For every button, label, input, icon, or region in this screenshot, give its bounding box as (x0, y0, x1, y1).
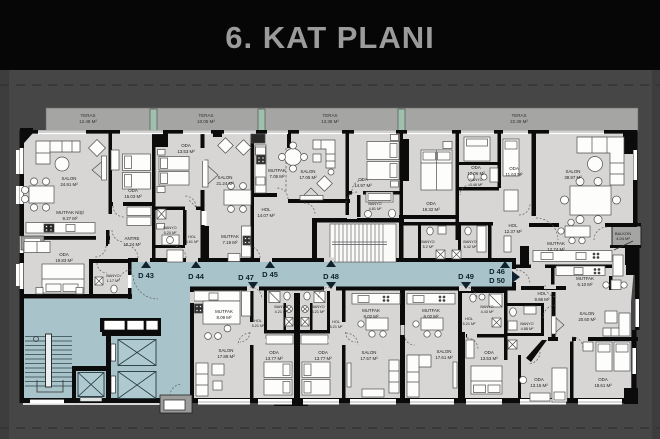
svg-text:10.24 M²: 10.24 M² (123, 242, 141, 247)
svg-text:12.37 M²: 12.37 M² (504, 229, 522, 234)
svg-text:ODA: ODA (269, 350, 279, 355)
svg-text:SALON: SALON (62, 176, 77, 181)
svg-text:D 44: D 44 (188, 272, 205, 281)
svg-text:BANYO: BANYO (274, 305, 287, 309)
svg-text:13.77 M²: 13.77 M² (314, 356, 332, 361)
svg-text:MUTFAK: MUTFAK (215, 309, 233, 314)
svg-text:BANYO: BANYO (368, 202, 381, 206)
svg-text:8.02 M²: 8.02 M² (424, 314, 439, 319)
svg-text:D 45: D 45 (262, 270, 278, 279)
svg-text:5.21 M²: 5.21 M² (330, 325, 344, 329)
svg-text:9.27 M²: 9.27 M² (63, 216, 78, 221)
svg-text:D 50: D 50 (489, 276, 505, 285)
svg-text:MUTFAK: MUTFAK (547, 241, 565, 246)
svg-text:ODA: ODA (181, 143, 191, 148)
svg-text:ODA: ODA (598, 377, 608, 382)
svg-text:5.21 M²: 5.21 M² (252, 324, 266, 328)
svg-text:5.20 M²: 5.20 M² (164, 231, 178, 235)
svg-text:MUTFAK NİŞİ: MUTFAK NİŞİ (56, 210, 84, 215)
svg-text:3.46 M²: 3.46 M² (470, 183, 484, 187)
svg-text:10.05 M²: 10.05 M² (197, 119, 215, 124)
svg-text:12.06 M²: 12.06 M² (467, 171, 485, 176)
svg-text:14.97 M²: 14.97 M² (354, 183, 372, 188)
svg-text:14.07 M²: 14.07 M² (257, 213, 275, 218)
svg-text:ODA: ODA (358, 177, 368, 182)
svg-text:ODA: ODA (471, 165, 481, 170)
svg-text:HOL: HOL (254, 319, 262, 323)
svg-text:4.43 M²: 4.43 M² (481, 310, 495, 314)
svg-text:8.02 M²: 8.02 M² (364, 314, 379, 319)
svg-text:ODA: ODA (534, 377, 544, 382)
svg-text:13.38 M²: 13.38 M² (321, 119, 339, 124)
svg-text:BANYO: BANYO (480, 305, 493, 309)
svg-text:TERAS: TERAS (198, 113, 213, 118)
svg-text:ANTRE: ANTRE (125, 236, 140, 241)
svg-text:BANYO: BANYO (520, 322, 533, 326)
svg-text:SALON: SALON (580, 311, 595, 316)
svg-text:ODA: ODA (128, 188, 138, 193)
svg-text:MUTFAK: MUTFAK (422, 308, 440, 313)
svg-text:13.15 M²: 13.15 M² (530, 383, 548, 388)
svg-text:ODA: ODA (509, 166, 519, 171)
svg-text:19.32 M²: 19.32 M² (422, 207, 440, 212)
svg-text:MUTFAK: MUTFAK (221, 234, 239, 239)
svg-text:5.61 M²: 5.61 M² (186, 240, 200, 244)
svg-text:4.04 M²: 4.04 M² (616, 236, 630, 241)
svg-text:BANYO: BANYO (163, 226, 176, 230)
svg-text:BANYO: BANYO (311, 305, 324, 309)
svg-text:38.97 M²: 38.97 M² (564, 175, 582, 180)
svg-text:6. KAT PLANI: 6. KAT PLANI (225, 20, 435, 55)
svg-text:7.19 M²: 7.19 M² (223, 240, 238, 245)
svg-text:D 47: D 47 (238, 273, 254, 282)
svg-text:MUTFAK: MUTFAK (362, 308, 380, 313)
svg-text:HOL: HOL (537, 291, 547, 296)
svg-text:HOL: HOL (465, 317, 473, 321)
svg-text:SALON: SALON (437, 349, 452, 354)
svg-text:BANYO: BANYO (106, 274, 119, 278)
svg-text:TERAS: TERAS (80, 113, 95, 118)
svg-text:HOL: HOL (508, 223, 518, 228)
svg-text:SALON: SALON (219, 348, 234, 353)
svg-text:MUTFAK: MUTFAK (576, 276, 594, 281)
svg-text:13.77 M²: 13.77 M² (265, 356, 283, 361)
svg-text:17.05 M²: 17.05 M² (299, 175, 317, 180)
svg-text:SALON: SALON (362, 350, 377, 355)
svg-text:4.21 M²: 4.21 M² (275, 310, 289, 314)
svg-text:5.2 M²: 5.2 M² (423, 245, 434, 249)
svg-text:6.42 M²: 6.42 M² (464, 245, 478, 249)
svg-text:21.24 M²: 21.24 M² (216, 181, 234, 186)
svg-text:HOL: HOL (188, 235, 196, 239)
svg-text:9.86 M²: 9.86 M² (535, 297, 550, 302)
svg-text:1.17 M²: 1.17 M² (107, 279, 121, 283)
svg-text:ODA: ODA (59, 252, 69, 257)
svg-text:D 43: D 43 (138, 271, 154, 280)
svg-text:D 49: D 49 (458, 272, 474, 281)
svg-text:SALON: SALON (566, 169, 581, 174)
svg-text:ODA: ODA (426, 201, 436, 206)
svg-text:SALON: SALON (301, 169, 316, 174)
svg-text:D 48: D 48 (323, 272, 339, 281)
svg-text:HOL: HOL (261, 207, 271, 212)
svg-text:HOL: HOL (332, 320, 340, 324)
svg-text:TERAS: TERAS (322, 113, 337, 118)
svg-text:19.83 M²: 19.83 M² (55, 258, 73, 263)
svg-text:5.21 M²: 5.21 M² (463, 322, 477, 326)
svg-text:7.05 M²: 7.05 M² (270, 174, 285, 179)
svg-text:ODA: ODA (318, 350, 328, 355)
svg-text:MUTFAK: MUTFAK (268, 168, 286, 173)
svg-text:BANYO: BANYO (463, 240, 476, 244)
svg-text:12.48 M²: 12.48 M² (79, 119, 97, 124)
svg-text:11.63 M²: 11.63 M² (505, 172, 523, 177)
svg-text:12.74 M²: 12.74 M² (547, 247, 565, 252)
svg-text:20.60 M²: 20.60 M² (578, 317, 596, 322)
svg-text:17.61 M²: 17.61 M² (435, 355, 453, 360)
svg-text:18.61 M²: 18.61 M² (594, 383, 612, 388)
svg-text:24.91 M²: 24.91 M² (60, 182, 78, 187)
svg-text:8.09 M²: 8.09 M² (217, 315, 232, 320)
svg-text:TERAS: TERAS (511, 113, 526, 118)
svg-text:17.57 M²: 17.57 M² (360, 356, 378, 361)
svg-text:15.03 M²: 15.03 M² (124, 194, 142, 199)
svg-text:BANYO: BANYO (469, 178, 482, 182)
svg-text:4.81 M²: 4.81 M² (369, 207, 383, 211)
svg-text:4.88 M²: 4.88 M² (521, 327, 535, 331)
svg-text:6.10 M²: 6.10 M² (578, 282, 593, 287)
svg-text:SALON: SALON (218, 175, 233, 180)
svg-text:ODA: ODA (484, 350, 494, 355)
svg-text:BANYO: BANYO (421, 240, 434, 244)
svg-text:D 46: D 46 (489, 267, 505, 276)
svg-text:17.89 M²: 17.89 M² (217, 354, 235, 359)
svg-text:4.21 M²: 4.21 M² (312, 310, 326, 314)
svg-text:13.53 M²: 13.53 M² (480, 356, 498, 361)
svg-text:22.39 M²: 22.39 M² (510, 119, 528, 124)
svg-text:13.53 M²: 13.53 M² (177, 149, 195, 154)
